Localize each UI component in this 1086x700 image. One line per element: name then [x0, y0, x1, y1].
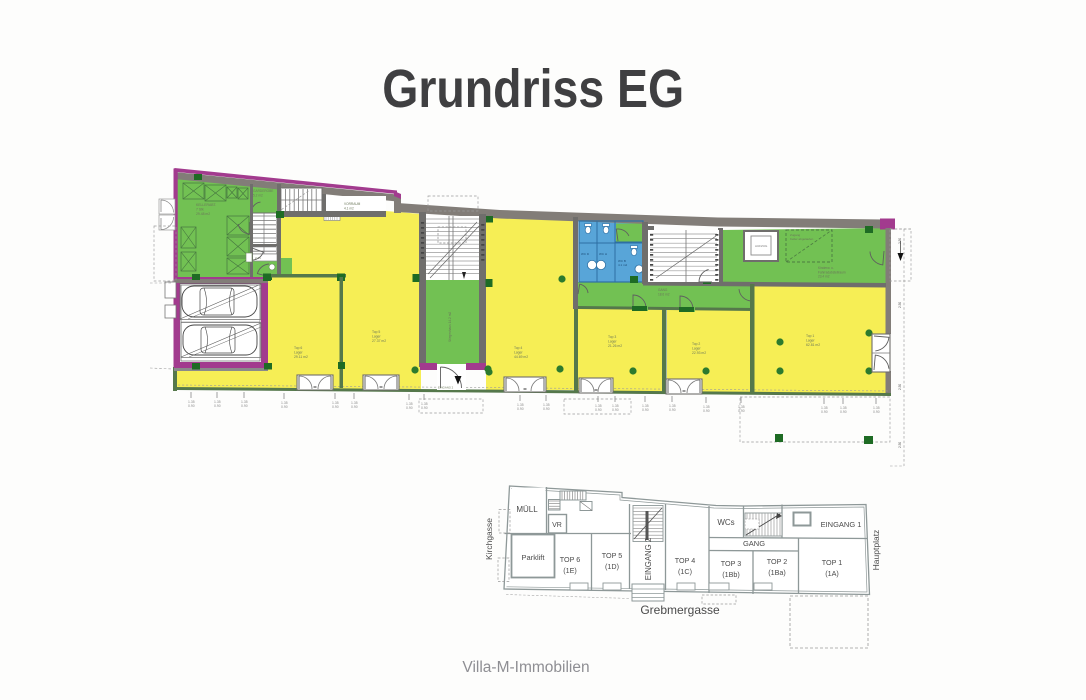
svg-text:TOP 5: TOP 5	[602, 551, 623, 560]
svg-text:27.37 m2: 27.37 m2	[372, 339, 386, 343]
svg-text:Grebmergasse: Grebmergasse	[640, 603, 720, 617]
svg-text:TOP 6: TOP 6	[560, 555, 581, 564]
svg-text:21.26 m2: 21.26 m2	[608, 344, 622, 348]
svg-text:Stiegenhaus 14.2 m2: Stiegenhaus 14.2 m2	[448, 312, 452, 342]
svg-text:0.90: 0.90	[873, 410, 880, 414]
svg-text:Keller abgelaufen: Keller abgelaufen	[790, 237, 814, 241]
svg-text:0.90: 0.90	[595, 408, 602, 412]
svg-text:(1E): (1E)	[563, 566, 577, 575]
svg-text:Kirchgasse: Kirchgasse	[484, 518, 494, 560]
svg-text:0.90: 0.90	[543, 407, 550, 411]
svg-text:Top 5: Top 5	[372, 330, 380, 334]
svg-text:WC D: WC D	[581, 252, 590, 256]
svg-text:0.90: 0.90	[821, 410, 828, 414]
svg-text:Lager: Lager	[692, 347, 702, 351]
svg-text:Top 2: Top 2	[692, 342, 700, 346]
svg-text:5.2 m2: 5.2 m2	[253, 193, 263, 197]
svg-text:Villa-M-Immobilien: Villa-M-Immobilien	[462, 659, 589, 676]
svg-text:0.90: 0.90	[241, 404, 248, 408]
svg-text:0.90: 0.90	[214, 404, 221, 408]
svg-text:Top 6: Top 6	[294, 346, 302, 350]
svg-text:Lager: Lager	[294, 351, 304, 355]
svg-text:Lager: Lager	[372, 335, 382, 339]
svg-text:EINGANG 2: EINGANG 2	[644, 538, 653, 580]
svg-text:0.90: 0.90	[421, 406, 428, 410]
svg-text:Grundriss EG: Grundriss EG	[382, 58, 684, 119]
svg-text:0.90: 0.90	[332, 405, 339, 409]
svg-text:(1Ba): (1Ba)	[768, 568, 786, 577]
svg-text:Top 3: Top 3	[608, 335, 616, 339]
svg-text:29.48 m2: 29.48 m2	[196, 212, 210, 216]
svg-text:0.90: 0.90	[642, 408, 649, 412]
svg-text:2.50: 2.50	[898, 238, 902, 244]
svg-text:23.4 m2: 23.4 m2	[818, 275, 830, 279]
svg-text:0.90: 0.90	[840, 410, 847, 414]
svg-text:Lager: Lager	[806, 339, 816, 343]
svg-text:(1D): (1D)	[605, 562, 619, 571]
svg-text:44.69 m2: 44.69 m2	[514, 355, 528, 359]
svg-text:(1Bb): (1Bb)	[722, 570, 740, 579]
svg-text:4.1 m2: 4.1 m2	[618, 263, 628, 267]
svg-text:0.90: 0.90	[669, 408, 676, 412]
svg-text:Hauptplatz: Hauptplatz	[871, 530, 881, 571]
svg-text:Top 4: Top 4	[514, 346, 522, 350]
svg-text:Lager: Lager	[514, 351, 524, 355]
svg-text:VR: VR	[552, 522, 562, 529]
svg-text:MÜLL: MÜLL	[516, 505, 538, 514]
svg-text:TOP 3: TOP 3	[721, 559, 742, 568]
svg-text:0.90: 0.90	[406, 406, 413, 410]
svg-text:0.90: 0.90	[351, 405, 358, 409]
svg-text:0.90: 0.90	[738, 409, 745, 413]
svg-text:(1A): (1A)	[825, 569, 839, 578]
svg-text:29.11 m2: 29.11 m2	[294, 355, 308, 359]
svg-text:0.90: 0.90	[517, 407, 524, 411]
svg-text:0.90: 0.90	[703, 409, 710, 413]
svg-text:7 Stk: 7 Stk	[196, 208, 204, 212]
svg-text:Lager: Lager	[608, 340, 618, 344]
svg-text:KELLERABT.: KELLERABT.	[196, 203, 216, 207]
svg-text:EINGANG 1: EINGANG 1	[821, 520, 862, 529]
svg-text:0.90: 0.90	[281, 405, 288, 409]
svg-text:4.1 m2: 4.1 m2	[344, 206, 354, 210]
svg-text:(1C): (1C)	[678, 567, 692, 576]
svg-text:AUFZUG: AUFZUG	[755, 244, 768, 248]
svg-text:22.93 m2: 22.93 m2	[692, 351, 706, 355]
svg-text:WC H: WC H	[599, 252, 607, 256]
svg-text:2.50: 2.50	[898, 442, 902, 448]
svg-text:Top 1: Top 1	[806, 334, 814, 338]
svg-text:2.50: 2.50	[898, 384, 902, 390]
svg-text:TOP 1: TOP 1	[822, 558, 843, 567]
svg-text:GANG: GANG	[743, 539, 765, 548]
svg-text:TOP 2: TOP 2	[767, 557, 788, 566]
svg-text:EINGANG 2: EINGANG 2	[438, 386, 454, 390]
svg-text:2.50: 2.50	[898, 302, 902, 308]
svg-text:0.90: 0.90	[612, 408, 619, 412]
svg-text:Parklift: Parklift	[522, 553, 546, 562]
svg-text:62.81 m2: 62.81 m2	[806, 343, 820, 347]
svg-text:18.6 m2: 18.6 m2	[658, 292, 670, 296]
svg-text:0.90: 0.90	[188, 404, 195, 408]
svg-text:WCs: WCs	[717, 518, 734, 527]
svg-text:TOP 4: TOP 4	[675, 556, 696, 565]
